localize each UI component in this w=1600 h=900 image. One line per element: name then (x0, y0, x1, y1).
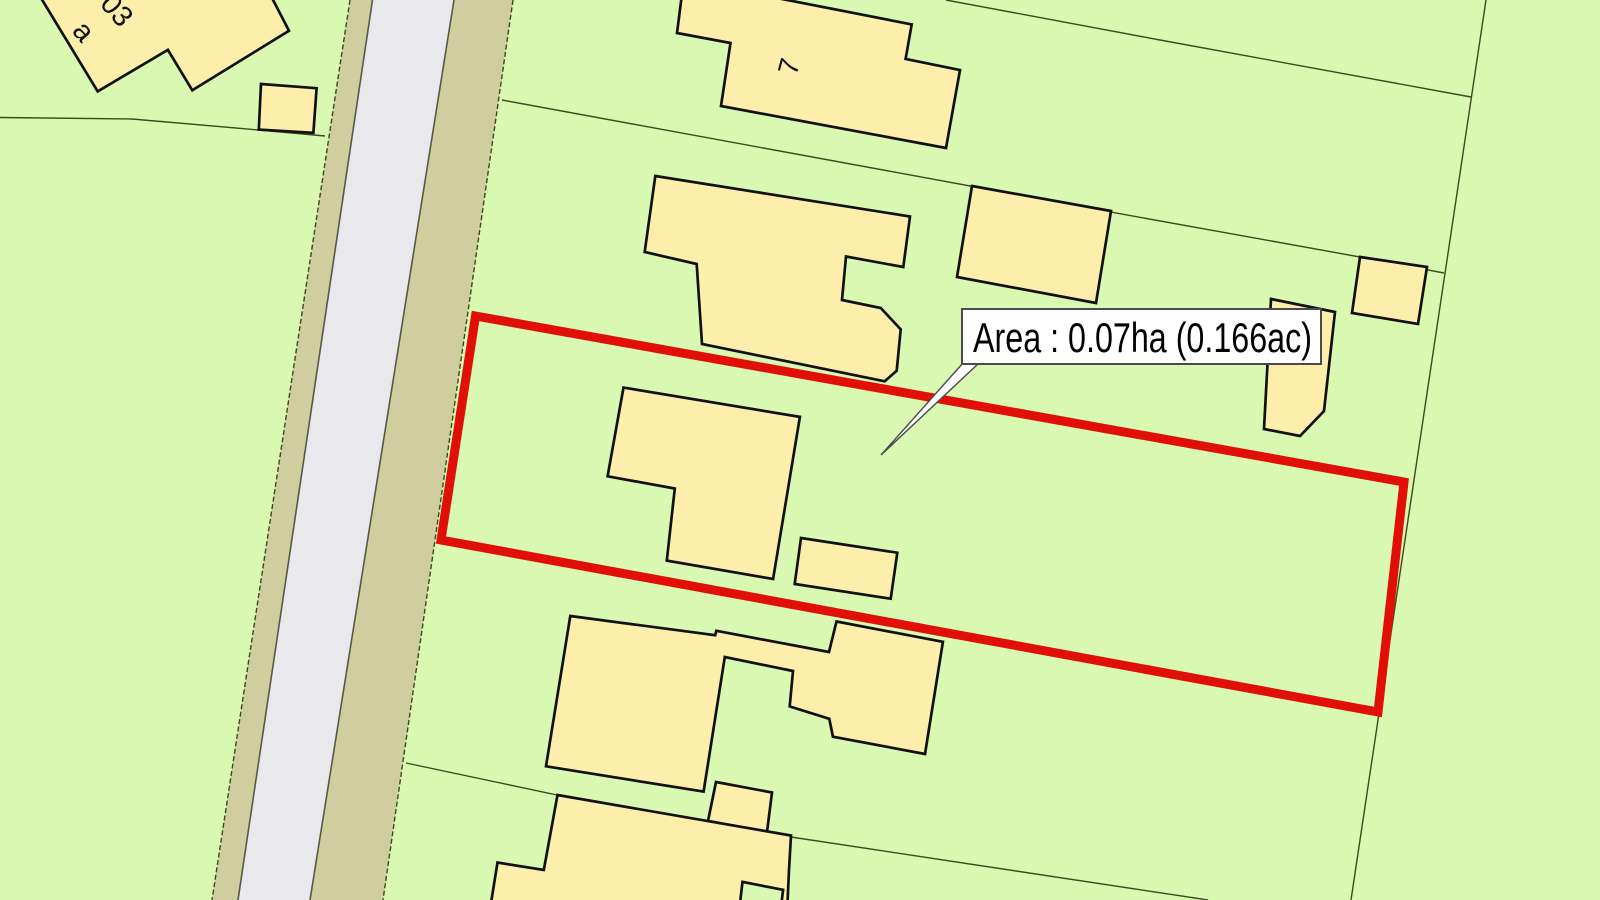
svg-text:Area : 0.07ha (0.166ac): Area : 0.07ha (0.166ac) (973, 314, 1312, 361)
